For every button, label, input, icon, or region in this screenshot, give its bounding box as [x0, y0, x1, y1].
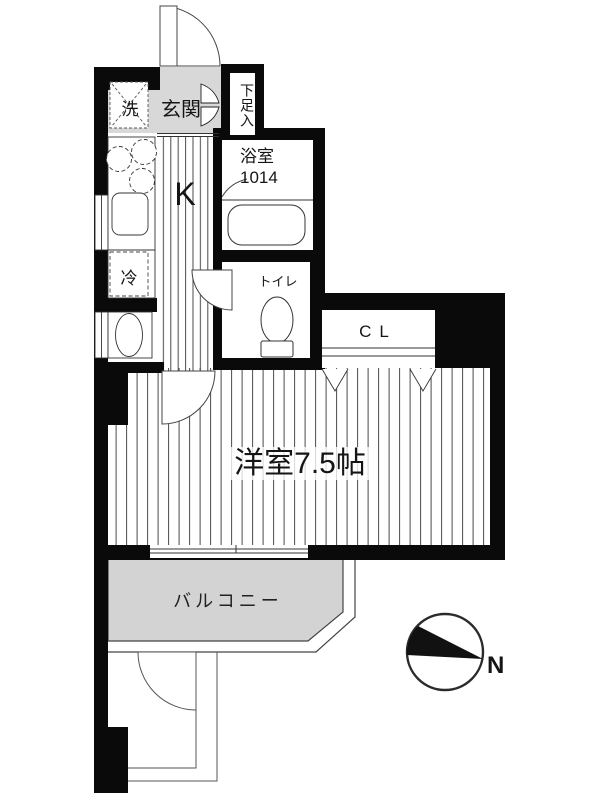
entrance-door [160, 6, 220, 66]
compass [407, 614, 483, 690]
kitchen-sink [112, 193, 148, 235]
label-north: N [487, 652, 504, 680]
annex-door-arc [138, 652, 196, 710]
annex-outline [128, 652, 217, 781]
label-bathroom: 浴室 1014 [240, 147, 310, 188]
toilet-fixtures [261, 297, 293, 357]
label-refrigerator: 冷 [108, 264, 150, 289]
label-entrance: 玄関 [146, 93, 216, 122]
label-balcony: バルコニー [118, 587, 338, 613]
label-kitchen: K [157, 176, 213, 213]
toilet-tank [261, 341, 293, 357]
label-bathroom-name: 浴室 [240, 147, 274, 166]
toilet-bowl [261, 297, 293, 343]
label-washer: 洗 [109, 95, 151, 120]
balcony-window [150, 545, 308, 558]
washbasin-alcove [108, 312, 152, 358]
washbasin [116, 314, 143, 357]
label-main-room: 洋室7.5帖 [150, 438, 450, 482]
label-closet: CL [328, 322, 428, 342]
floor-plan: 洗 玄関 下足入 K 浴室 1014 冷 トイレ CL 洋室7.5帖 バルコニー… [0, 0, 600, 800]
label-bathroom-size: 1014 [240, 168, 278, 187]
kitchen-window-upper [95, 195, 108, 250]
floor-plan-svg [0, 0, 600, 800]
kitchen-window-lower [95, 312, 108, 358]
entrance-step-line [157, 134, 219, 137]
label-shoe-cabinet: 下足入 [230, 76, 257, 134]
label-toilet: トイレ [246, 271, 310, 290]
bathtub [228, 205, 305, 245]
